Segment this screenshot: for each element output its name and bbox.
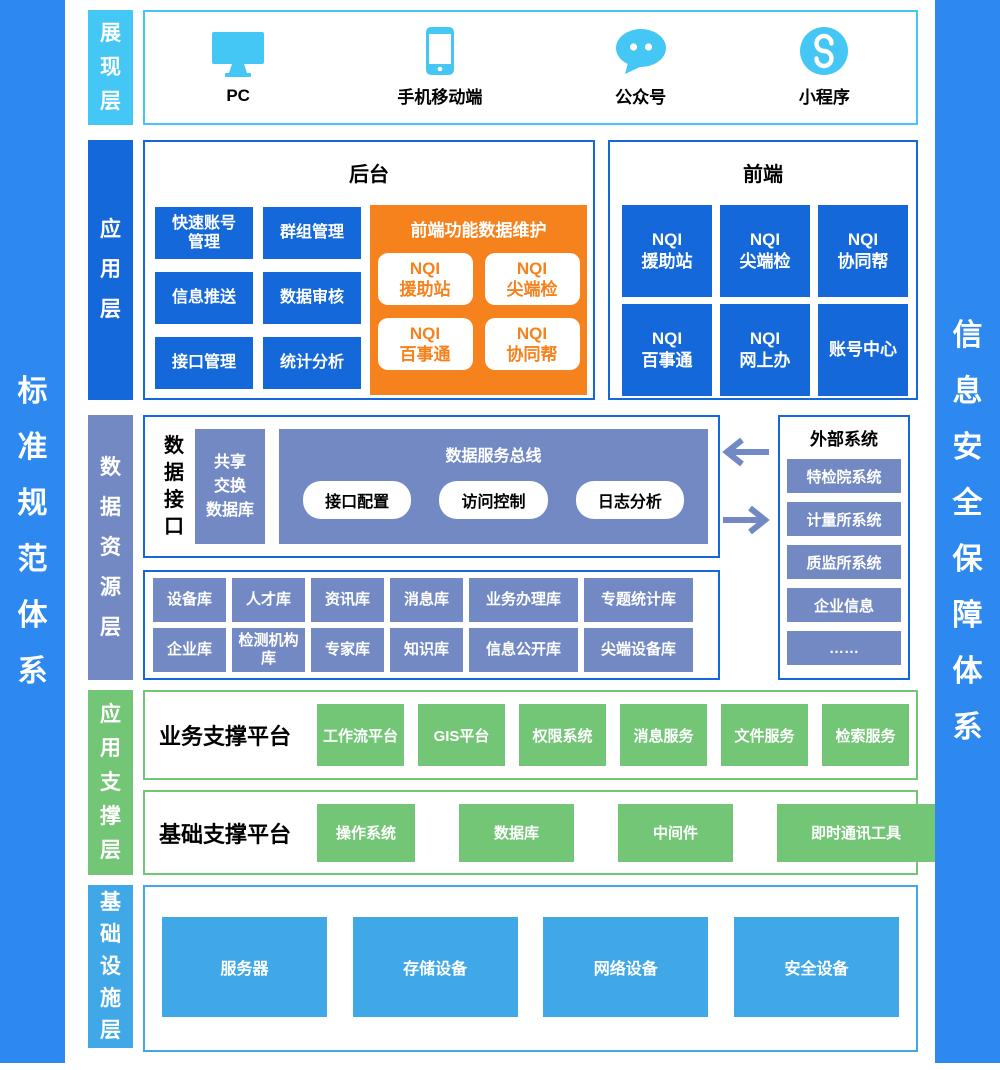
business-support-platform-title: 业务支撑平台 [159, 719, 317, 751]
external-system-item: …… [787, 631, 901, 665]
business-support-item: 权限系统 [519, 704, 606, 766]
application-support-layer-row: 应用支撑层 业务支撑平台 工作流平台 GIS平台 权限系统 消息服务 文件服务 … [88, 690, 918, 875]
basic-support-item: 操作系统 [317, 804, 415, 862]
database-cell: 设备库 [153, 578, 226, 622]
left-banner-text: 标准规范体系 [18, 364, 48, 700]
frontend-item: NQI 协同帮 [818, 205, 908, 297]
frontend-item: NQI 百事通 [622, 304, 712, 396]
backend-box: 后台 快速账号管理 群组管理 信息推送 数据审核 接口管理 统计分析 前端功能数… [143, 140, 595, 400]
infrastructure-item: 存储设备 [353, 917, 518, 1017]
business-support-item: 检索服务 [822, 704, 909, 766]
backend-button: 统计分析 [263, 337, 361, 389]
backend-title: 后台 [145, 142, 593, 187]
infrastructure-item: 网络设备 [543, 917, 708, 1017]
presentation-item-label: 小程序 [799, 83, 850, 108]
external-systems-title: 外部系统 [787, 425, 901, 450]
application-layer-row: 应用层 后台 快速账号管理 群组管理 信息推送 数据审核 接口管理 统计分析 前… [88, 140, 918, 400]
maintenance-item: NQI 援助站 [378, 253, 473, 305]
data-flow-arrows [720, 433, 772, 539]
backend-button: 快速账号管理 [155, 207, 253, 259]
maintenance-item: NQI 百事通 [378, 318, 473, 370]
maintenance-grid: NQI 援助站 NQI 尖端检 NQI 百事通 NQI 协同帮 [370, 253, 587, 370]
basic-support-item: 中间件 [618, 804, 733, 862]
presentation-box: PC 手机移动端 公众号 小程序 [143, 10, 918, 125]
chat-bubble-icon [615, 27, 667, 75]
business-support-item: GIS平台 [418, 704, 505, 766]
right-banner: 信息安全保障体系 [935, 0, 1000, 1063]
miniprogram-icon [800, 27, 848, 75]
basic-support-items: 操作系统 数据库 中间件 即时通讯工具 [317, 804, 935, 862]
frontend-item: NQI 援助站 [622, 205, 712, 297]
frontend-box: 前端 NQI 援助站 NQI 尖端检 NQI 协同帮 NQI 百事通 NQI 网… [608, 140, 918, 400]
database-cell: 检测机构库 [232, 628, 305, 672]
database-cell: 人才库 [232, 578, 305, 622]
database-cell: 尖端设备库 [584, 628, 693, 672]
frontend-item: NQI 尖端检 [720, 205, 810, 297]
frontend-title: 前端 [610, 142, 916, 187]
database-row: 设备库 人才库 资讯库 消息库 业务办理库 专题统计库 [153, 578, 710, 622]
data-interface-box: 数据接口 共享 交换 数据库 数据服务总线 接口配置 访问控制 日志分析 [143, 415, 720, 558]
frontend-item: 账号中心 [818, 304, 908, 396]
basic-support-item: 即时通讯工具 [777, 804, 935, 862]
right-banner-text: 信息安全保障体系 [953, 308, 983, 756]
basic-support-platform-box: 基础支撑平台 操作系统 数据库 中间件 即时通讯工具 [143, 790, 918, 875]
database-cell: 专题统计库 [584, 578, 693, 622]
presentation-item-pc: PC [211, 30, 265, 106]
presentation-layer-row: 展现层 PC 手机移动端 公众号 [88, 10, 918, 125]
maintenance-item: NQI 尖端检 [485, 253, 580, 305]
business-support-platform-box: 业务支撑平台 工作流平台 GIS平台 权限系统 消息服务 文件服务 检索服务 [143, 690, 918, 780]
smartphone-icon [425, 27, 455, 75]
bus-pill: 接口配置 [303, 481, 411, 519]
basic-support-platform-title: 基础支撑平台 [159, 817, 317, 849]
frontend-item: NQI 网上办 [720, 304, 810, 396]
backend-button: 群组管理 [263, 207, 361, 259]
frontend-data-maintenance-box: 前端功能数据维护 NQI 援助站 NQI 尖端检 NQI 百事通 NQI 协同帮 [370, 205, 587, 395]
database-cell: 消息库 [390, 578, 463, 622]
backend-button: 信息推送 [155, 272, 253, 324]
business-support-item: 工作流平台 [317, 704, 404, 766]
database-cell: 专家库 [311, 628, 384, 672]
business-support-item: 消息服务 [620, 704, 707, 766]
infrastructure-box: 服务器 存储设备 网络设备 安全设备 [143, 885, 918, 1052]
external-system-item: 企业信息 [787, 588, 901, 622]
external-systems-box: 外部系统 特检院系统 计量所系统 质监所系统 企业信息 …… [778, 415, 910, 680]
infrastructure-item: 安全设备 [734, 917, 899, 1017]
database-cell: 信息公开库 [469, 628, 578, 672]
monitor-icon [211, 30, 265, 78]
external-system-item: 计量所系统 [787, 502, 901, 536]
external-system-item: 特检院系统 [787, 459, 901, 493]
arrow-right-icon [720, 501, 772, 539]
infrastructure-layer-label: 基础设施层 [88, 885, 133, 1048]
databases-box: 设备库 人才库 资讯库 消息库 业务办理库 专题统计库 企业库 检测机构库 专家… [143, 570, 720, 680]
database-cell: 知识库 [390, 628, 463, 672]
presentation-item-label: 手机移动端 [397, 83, 482, 108]
presentation-item-miniprogram: 小程序 [799, 27, 850, 108]
data-service-bus: 数据服务总线 接口配置 访问控制 日志分析 [279, 429, 708, 544]
application-layer-label: 应用层 [88, 140, 133, 400]
data-interface-label: 数据接口 [153, 429, 195, 544]
arrow-left-icon [720, 433, 772, 471]
presentation-item-mobile: 手机移动端 [397, 27, 482, 108]
presentation-item-label: PC [226, 86, 250, 106]
backend-button: 接口管理 [155, 337, 253, 389]
data-resource-layer-label: 数据资源层 [88, 415, 133, 680]
backend-button-grid: 快速账号管理 群组管理 信息推送 数据审核 接口管理 统计分析 [155, 207, 361, 389]
diagram-body: 展现层 PC 手机移动端 公众号 [88, 0, 918, 1070]
database-row: 企业库 检测机构库 专家库 知识库 信息公开库 尖端设备库 [153, 628, 710, 672]
backend-button: 数据审核 [263, 272, 361, 324]
frontend-data-maintenance-title: 前端功能数据维护 [370, 216, 587, 241]
presentation-item-label: 公众号 [615, 83, 666, 108]
bus-pill: 访问控制 [439, 481, 547, 519]
share-exchange-database: 共享 交换 数据库 [195, 429, 265, 544]
data-service-bus-title: 数据服务总线 [279, 442, 708, 466]
database-cell: 业务办理库 [469, 578, 578, 622]
maintenance-item: NQI 协同帮 [485, 318, 580, 370]
frontend-grid: NQI 援助站 NQI 尖端检 NQI 协同帮 NQI 百事通 NQI 网上办 … [622, 205, 908, 396]
presentation-layer-label: 展现层 [88, 10, 133, 125]
business-support-item: 文件服务 [721, 704, 808, 766]
bus-pill-row: 接口配置 访问控制 日志分析 [279, 481, 708, 519]
bus-pill: 日志分析 [576, 481, 684, 519]
basic-support-item: 数据库 [459, 804, 574, 862]
presentation-item-official-account: 公众号 [615, 27, 667, 108]
business-support-items: 工作流平台 GIS平台 权限系统 消息服务 文件服务 检索服务 [317, 704, 909, 766]
application-support-layer-label: 应用支撑层 [88, 690, 133, 875]
database-cell: 资讯库 [311, 578, 384, 622]
infrastructure-item: 服务器 [162, 917, 327, 1017]
external-system-item: 质监所系统 [787, 545, 901, 579]
infrastructure-layer-row: 基础设施层 服务器 存储设备 网络设备 安全设备 [88, 885, 918, 1052]
left-banner: 标准规范体系 [0, 0, 65, 1063]
data-resource-layer-row: 数据资源层 数据接口 共享 交换 数据库 数据服务总线 接口配置 访问控制 日志… [88, 415, 918, 680]
database-cell: 企业库 [153, 628, 226, 672]
